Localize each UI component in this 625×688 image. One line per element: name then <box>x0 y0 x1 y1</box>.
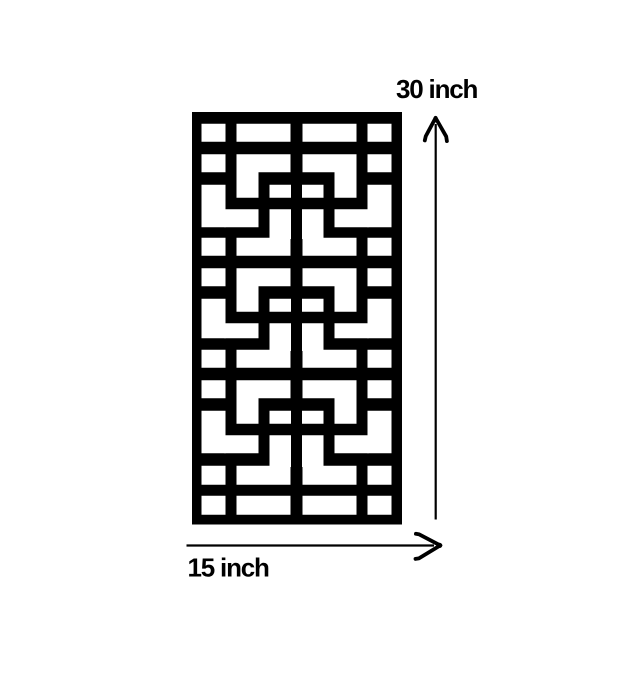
svg-text:30 inch: 30 inch <box>396 74 478 104</box>
svg-text:15 inch: 15 inch <box>188 553 270 583</box>
